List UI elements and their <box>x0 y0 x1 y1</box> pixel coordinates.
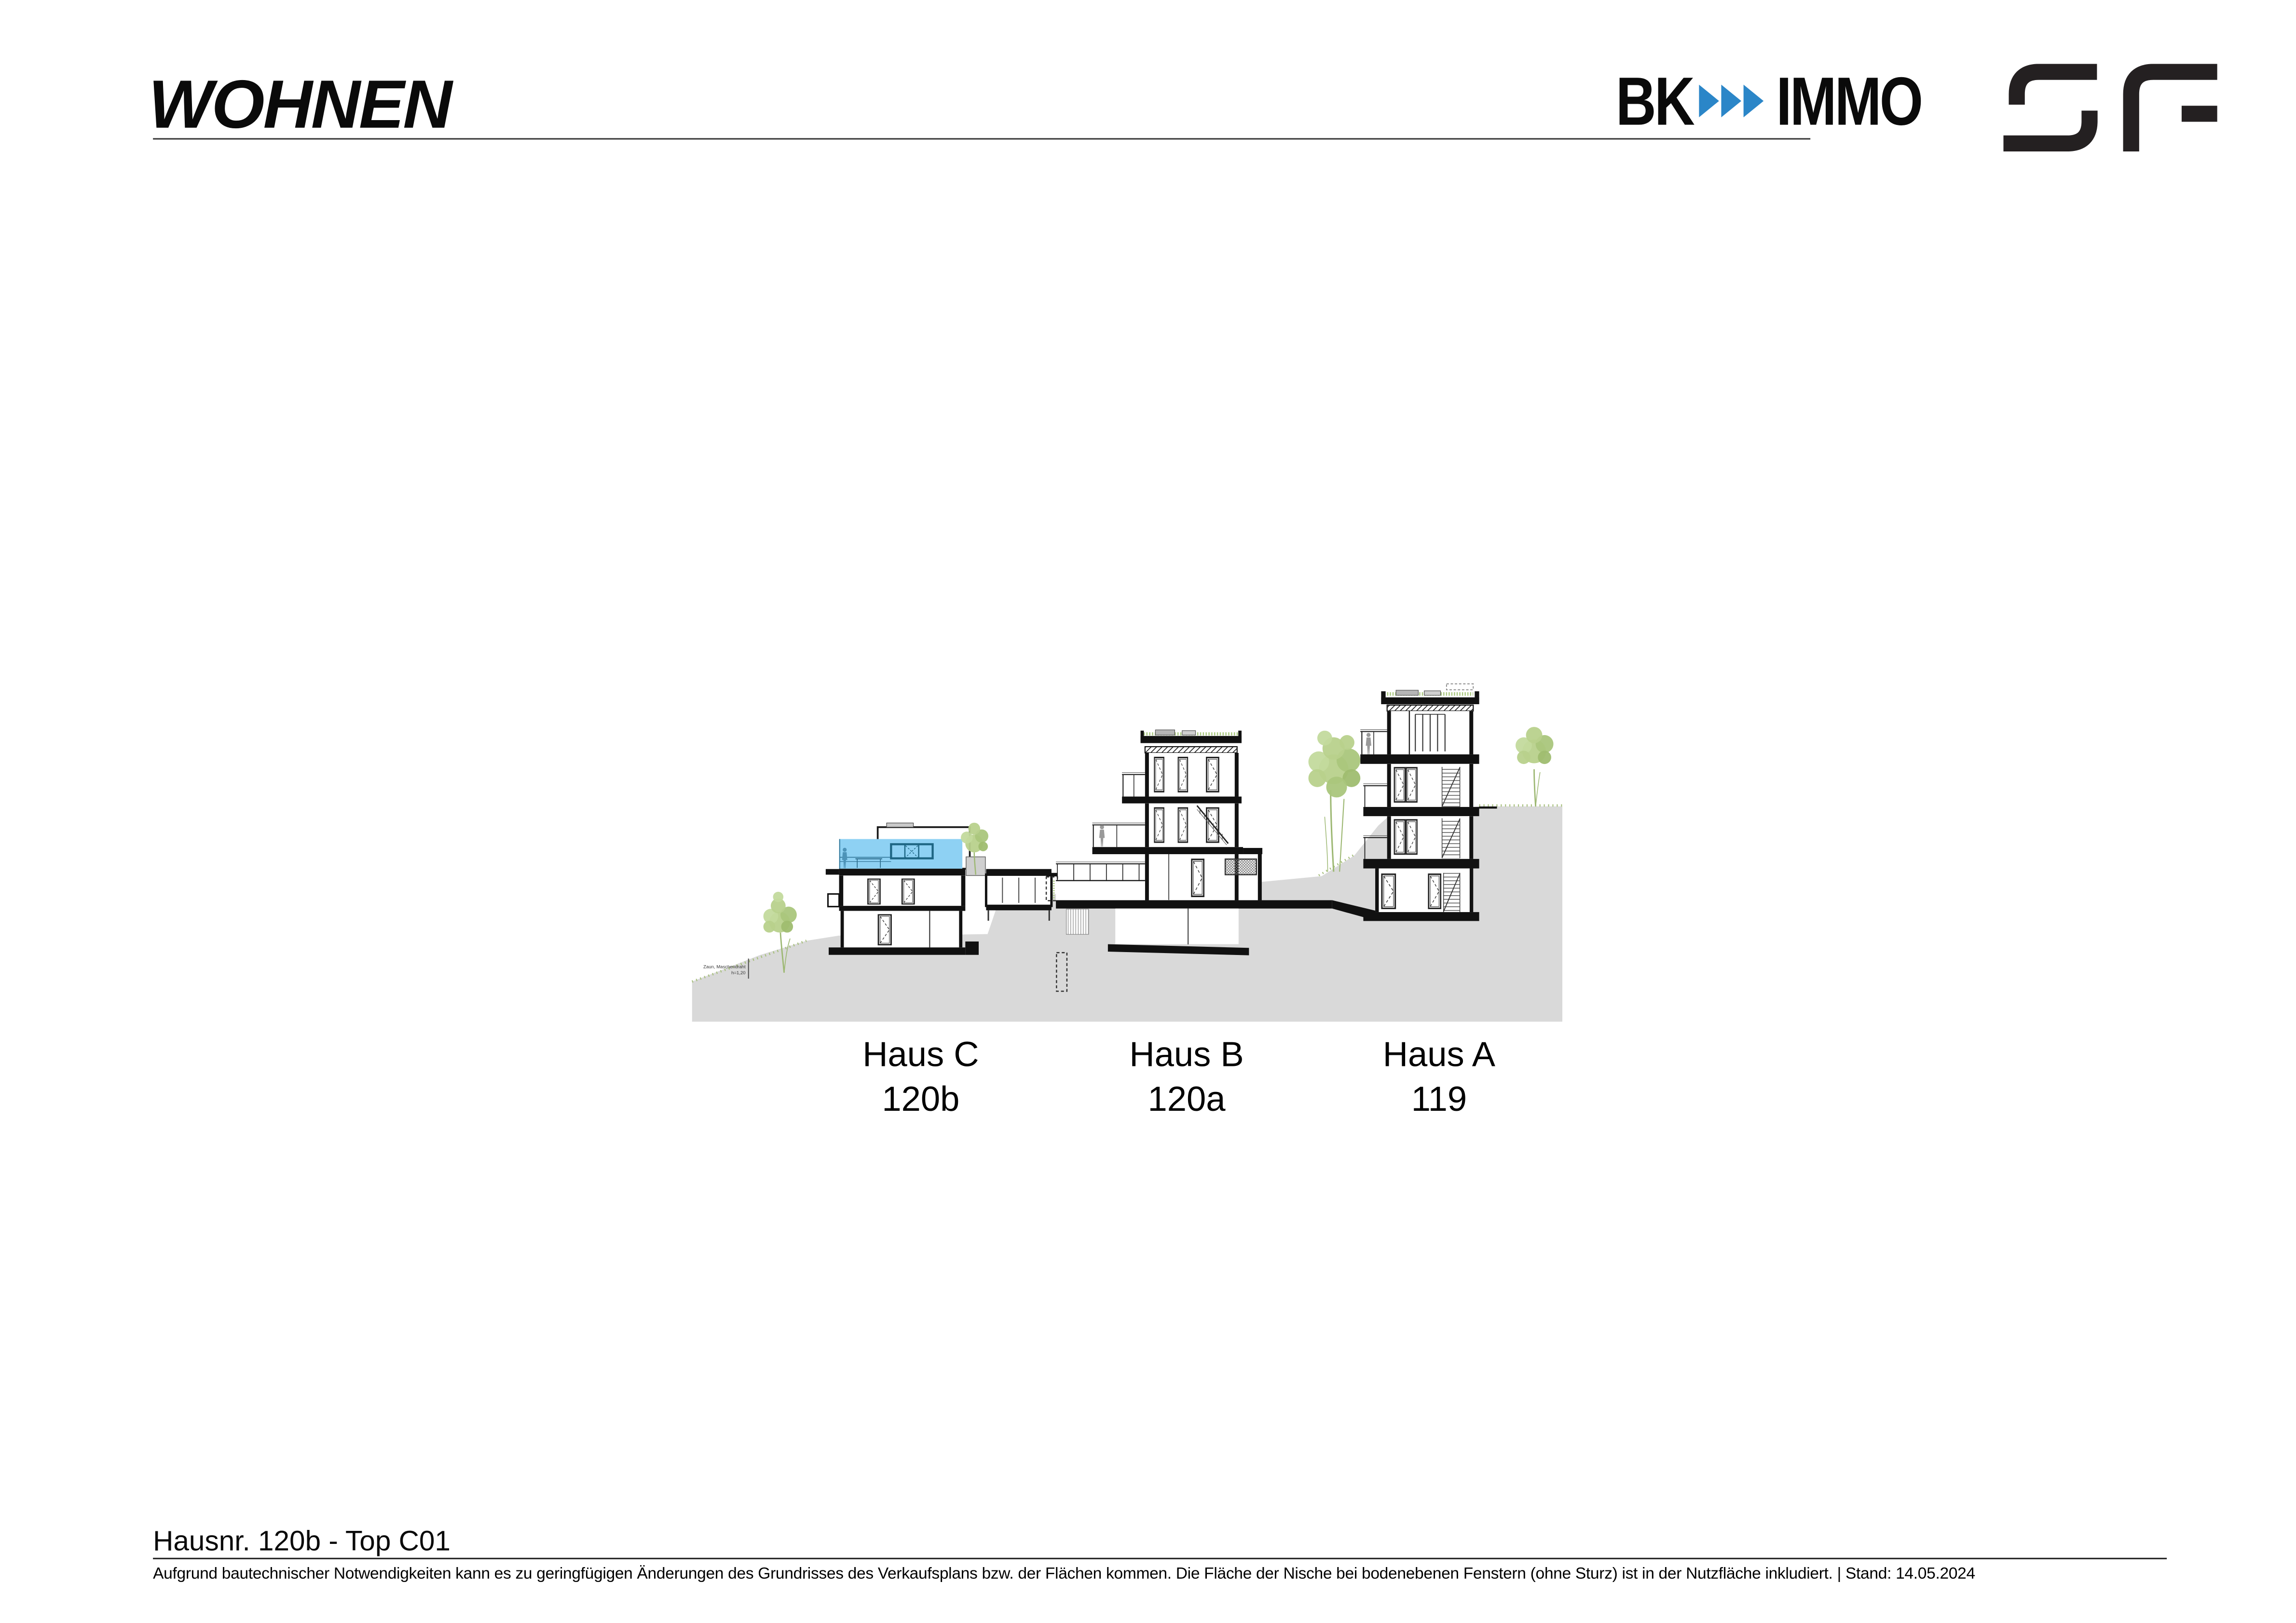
triple-arrow-icon <box>1700 84 1768 117</box>
site-section-drawing: Zaun, Maschendraht h=1,20 <box>683 668 1574 1029</box>
header-rule <box>153 138 1810 139</box>
haus-number: 120b <box>772 1077 1069 1122</box>
bk-immo-logo: BK IMMO <box>1616 68 1954 134</box>
haus-number: 119 <box>1291 1077 1588 1122</box>
site-label-haus-c: Haus C 120b <box>772 1032 1069 1123</box>
tree-icon <box>1309 731 1361 872</box>
fence-label-line2: h=1,20 <box>731 970 745 976</box>
sf-monogram-icon <box>2003 64 2217 151</box>
page-title: WOHNEN <box>149 70 451 138</box>
page-canvas: WOHNEN BK IMMO <box>0 0 2296 1623</box>
fence-label-line1: Zaun, Maschendraht <box>703 964 746 969</box>
bk-logo-text-right: IMMO <box>1777 68 1922 134</box>
haus-name: Haus A <box>1291 1032 1588 1077</box>
unit-title: Hausnr. 120b - Top C01 <box>153 1528 451 1558</box>
highlighted-unit-top-c01 <box>839 839 963 869</box>
disclaimer-text: Aufgrund bautechnischer Notwendigkeiten … <box>153 1563 1975 1584</box>
haus-name: Haus C <box>772 1032 1069 1077</box>
site-label-haus-a: Haus A 119 <box>1291 1032 1588 1123</box>
bk-logo-text-left: BK <box>1616 68 1693 134</box>
tree-icon <box>1516 727 1554 806</box>
footer-rule <box>153 1558 2167 1559</box>
